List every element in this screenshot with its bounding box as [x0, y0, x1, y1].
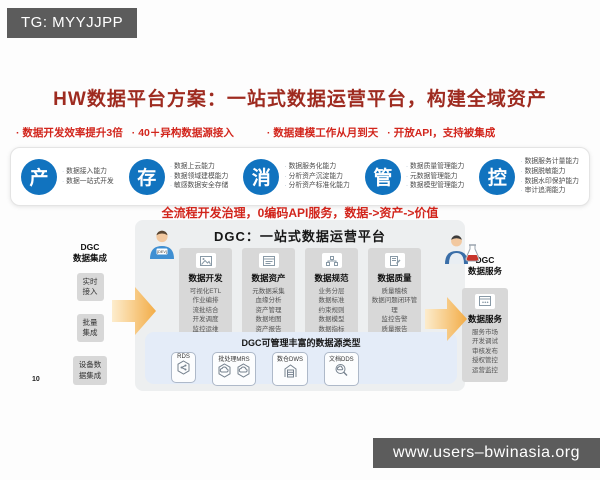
capability-item: 数据模型管理能力: [406, 181, 465, 191]
column-data-assets: 数据资产 元数据采集 血缘分析 资产管理 数据地图 资产报告: [242, 248, 295, 340]
capability-item: 敏感数据安全存储: [170, 181, 229, 191]
highlight-item: 数据开发效率提升3倍: [16, 125, 123, 140]
slogan-text: 全流程开发治理，0编码API服务，数据->资产->价值: [0, 204, 600, 221]
column-data-quality: 数据质量 质量稽核 数据问题闭环管理 监控告警 质量报告: [368, 248, 421, 340]
capability-group-produce: 产 数据接入能力 数据一站式开发: [21, 159, 114, 195]
column-label: 数据服务: [464, 313, 506, 325]
flow-arrow-right-icon: [423, 291, 469, 352]
highlight-item: 数据建模工作从月到天: [267, 125, 378, 140]
datasource-group-mrs: 批处理MRS: [212, 352, 256, 386]
datasource-group-dws: 数仓DWS: [272, 352, 308, 386]
image-icon: [196, 253, 216, 268]
capability-item: 数据上云能力: [170, 162, 229, 172]
capability-item: 数据领域建模能力: [170, 172, 229, 182]
column-item: 授权管控: [464, 356, 506, 365]
capability-group-manage: 管 数据质量管理能力 元数据管理能力 数据模型管理能力: [365, 159, 465, 195]
capability-item: 数据服务化能力: [284, 162, 349, 172]
column-item: 作业编排: [182, 296, 229, 305]
column-item: 流批结合: [182, 306, 229, 315]
flow-icon: [322, 253, 342, 268]
column-label: 数据规范: [308, 272, 355, 284]
platform-columns: 数据开发 可视化ETL 作业编排 流批结合 开发调度 监控运维 数据资产 元数据…: [179, 248, 421, 340]
capability-item: 分析资产沉淀能力: [284, 172, 349, 182]
hexagon-cloud-icon: [236, 363, 251, 383]
datasource-label: 文档DDS: [329, 354, 354, 363]
control-circle-icon: 控: [479, 159, 515, 195]
highlight-item: 开放API，支持被集成: [387, 125, 495, 140]
analyst-persona-icon: [443, 233, 479, 269]
datasource-strip: DGC可管理丰富的数据源类型 RDS 批处理MRS: [145, 332, 457, 384]
slide-title: HW数据平台方案：一站式数据运营平台，构建全域资产: [0, 84, 600, 111]
column-item: 可视化ETL: [182, 287, 229, 296]
column-item: 运营监控: [464, 366, 506, 375]
capability-item: 数据服务计量能力: [520, 157, 579, 167]
column-item: 数据标准: [308, 296, 355, 305]
developer-persona-icon: {DEV}: [146, 229, 178, 264]
column-data-development: 数据开发 可视化ETL 作业编排 流批结合 开发调度 监控运维: [179, 248, 232, 340]
column-label: 数据质量: [371, 272, 418, 284]
column-data-standards: 数据规范 业务分层 数据标准 约束规则 数据模型 数据指标: [305, 248, 358, 340]
device-data-box: 设备数 据集成: [73, 356, 108, 384]
highlight-item: 40＋异构数据源接入: [132, 125, 234, 140]
consume-circle-icon: 消: [243, 159, 279, 195]
hexagon-cloud-icon: [217, 363, 232, 383]
capability-group-store: 存 数据上云能力 数据领域建模能力 敏感数据安全存储: [129, 159, 229, 195]
capability-item: 数据接入能力: [62, 167, 114, 177]
document-icon: [259, 253, 279, 268]
telegram-watermark-badge: TG: MYYJJPP: [7, 8, 137, 38]
dev-badge-label: {DEV}: [157, 250, 168, 254]
column-item: 服务市场: [464, 328, 506, 337]
hexagon-db-icon: [176, 360, 191, 380]
column-label: 数据开发: [182, 272, 229, 284]
column-item: 约束规则: [308, 306, 355, 315]
highlight-bullets: 数据开发效率提升3倍 40＋异构数据源接入 数据建模工作从月到天 开放API，支…: [16, 125, 586, 140]
capability-item: 数据一站式开发: [62, 177, 114, 187]
capability-item: 数据质量管理能力: [406, 162, 465, 172]
column-item: 数据地图: [245, 315, 292, 324]
column-item: 监控告警: [371, 315, 418, 324]
column-item: 资产管理: [245, 306, 292, 315]
column-item: 开发调试: [464, 337, 506, 346]
batch-integration-box: 批量 集成: [77, 314, 104, 342]
file-check-icon: [385, 253, 405, 268]
manage-circle-icon: 管: [365, 159, 401, 195]
capability-item: 审计追溯能力: [520, 186, 579, 196]
column-label: 数据资产: [245, 272, 292, 284]
produce-circle-icon: 产: [21, 159, 57, 195]
capability-bar: 产 数据接入能力 数据一站式开发 存 数据上云能力 数据领域建模能力 敏感数据安…: [10, 147, 590, 206]
column-item: 数据模型: [308, 315, 355, 324]
capability-item: 分析资产标准化能力: [284, 181, 349, 191]
capability-group-control: 控 数据服务计量能力 数据脱敏能力 数据水印保护能力 审计追溯能力: [479, 157, 579, 196]
column-item: 元数据采集: [245, 287, 292, 296]
datasource-label: 数仓DWS: [277, 354, 303, 363]
data-integration-title: DGC 数据集成: [73, 242, 107, 265]
datasource-label: 批处理MRS: [217, 354, 251, 363]
capability-item: 元数据管理能力: [406, 172, 465, 182]
warehouse-icon: [283, 363, 298, 383]
capability-group-consume: 消 数据服务化能力 分析资产沉淀能力 分析资产标准化能力: [243, 159, 349, 195]
datasource-title: DGC可管理丰富的数据源类型: [145, 332, 457, 349]
api-icon: [475, 294, 495, 309]
dgc-platform-panel: DGC：一站式数据运营平台 数据开发 可视化ETL 作业编排 流批结合 开发调度…: [135, 220, 465, 391]
column-item: 审核发布: [464, 347, 506, 356]
capability-item: 数据脱敏能力: [520, 167, 579, 177]
column-item: 质量稽核: [371, 287, 418, 296]
datasource-group-dds: 文档DDS: [324, 352, 359, 386]
datasource-group-rds: RDS: [171, 352, 196, 383]
column-item: 开发调度: [182, 315, 229, 324]
realtime-ingest-box: 实时 接入: [77, 273, 104, 301]
column-item: 数据问题闭环管理: [371, 296, 418, 315]
column-item: 业务分层: [308, 287, 355, 296]
capability-item: 数据水印保护能力: [520, 177, 579, 187]
website-watermark-badge: www.users–bwinasia.org: [373, 438, 600, 468]
page-number: 10: [32, 376, 40, 383]
magnifier-db-icon: [334, 363, 349, 383]
platform-title: DGC：一站式数据运营平台: [135, 220, 465, 245]
column-item: 血缘分析: [245, 296, 292, 305]
store-circle-icon: 存: [129, 159, 165, 195]
flow-arrow-left-icon: [110, 281, 158, 346]
